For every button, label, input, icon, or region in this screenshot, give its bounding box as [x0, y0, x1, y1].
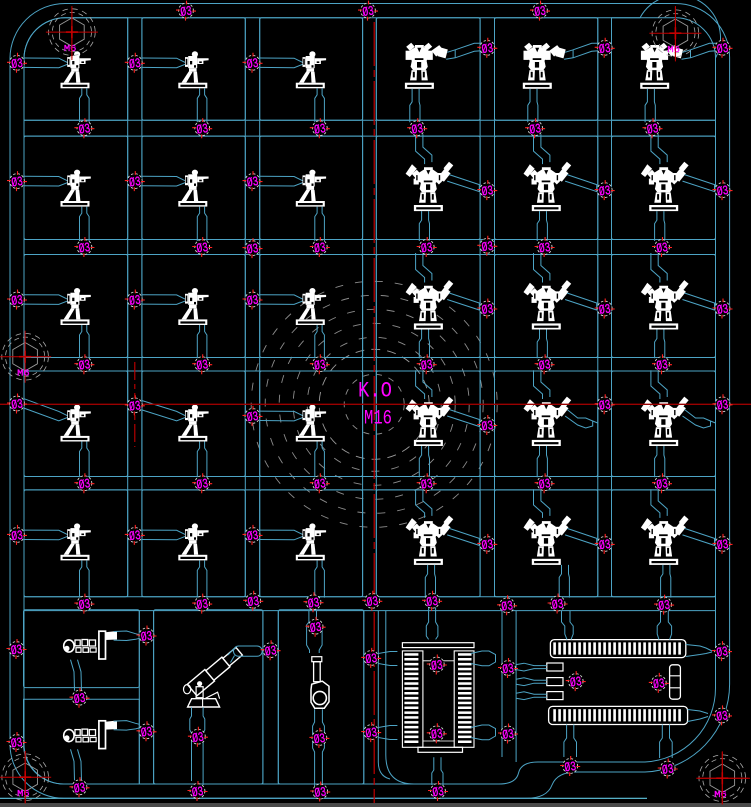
svg-text:M6: M6: [667, 44, 680, 55]
svg-text:M6: M6: [64, 43, 77, 54]
svg-text:M6: M6: [714, 789, 727, 800]
svg-text:M16: M16: [364, 408, 392, 431]
svg-text:M6: M6: [17, 368, 30, 379]
svg-text:K.O: K.O: [358, 379, 392, 404]
svg-text:M6: M6: [17, 788, 30, 799]
